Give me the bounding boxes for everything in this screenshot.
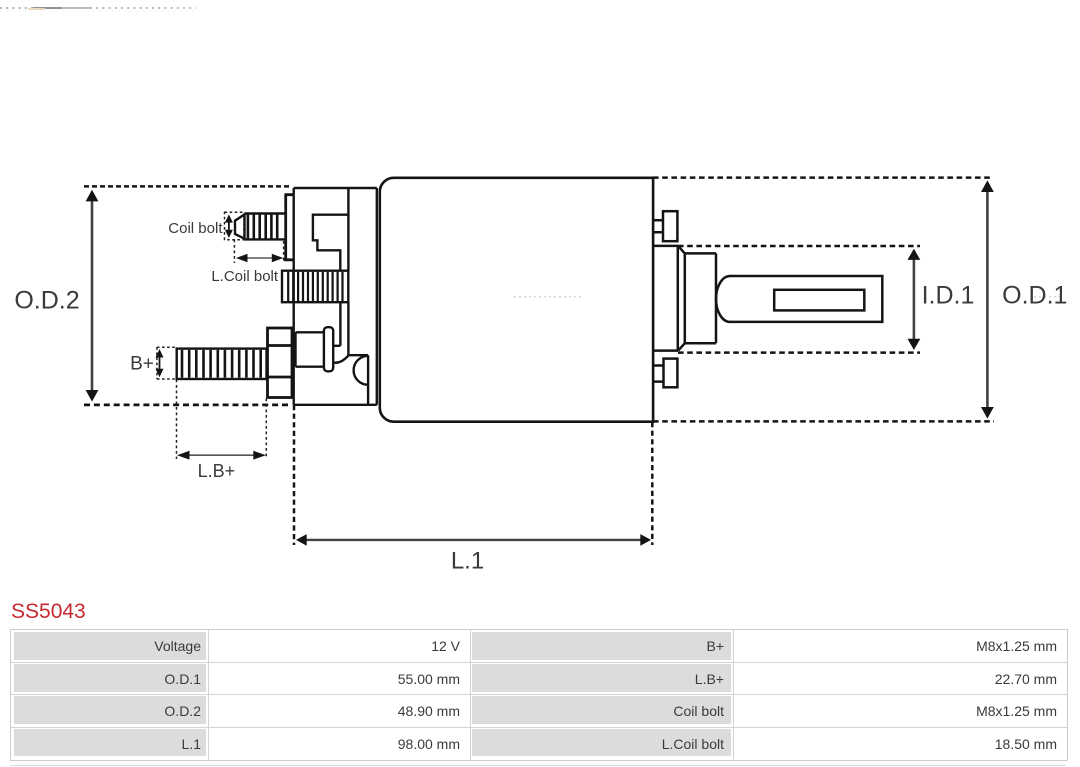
svg-text:L.1: L.1 — [451, 548, 484, 575]
svg-text:O.D.1: O.D.1 — [1002, 282, 1067, 310]
svg-text:O.D.2: O.D.2 — [14, 287, 79, 315]
svg-text:L.B+: L.B+ — [198, 461, 236, 481]
svg-text:L.Coil bolt: L.Coil bolt — [211, 268, 279, 285]
svg-text:Coil bolt: Coil bolt — [168, 220, 223, 237]
svg-text:I.D.1: I.D.1 — [922, 282, 975, 310]
svg-text:B+: B+ — [130, 354, 154, 375]
